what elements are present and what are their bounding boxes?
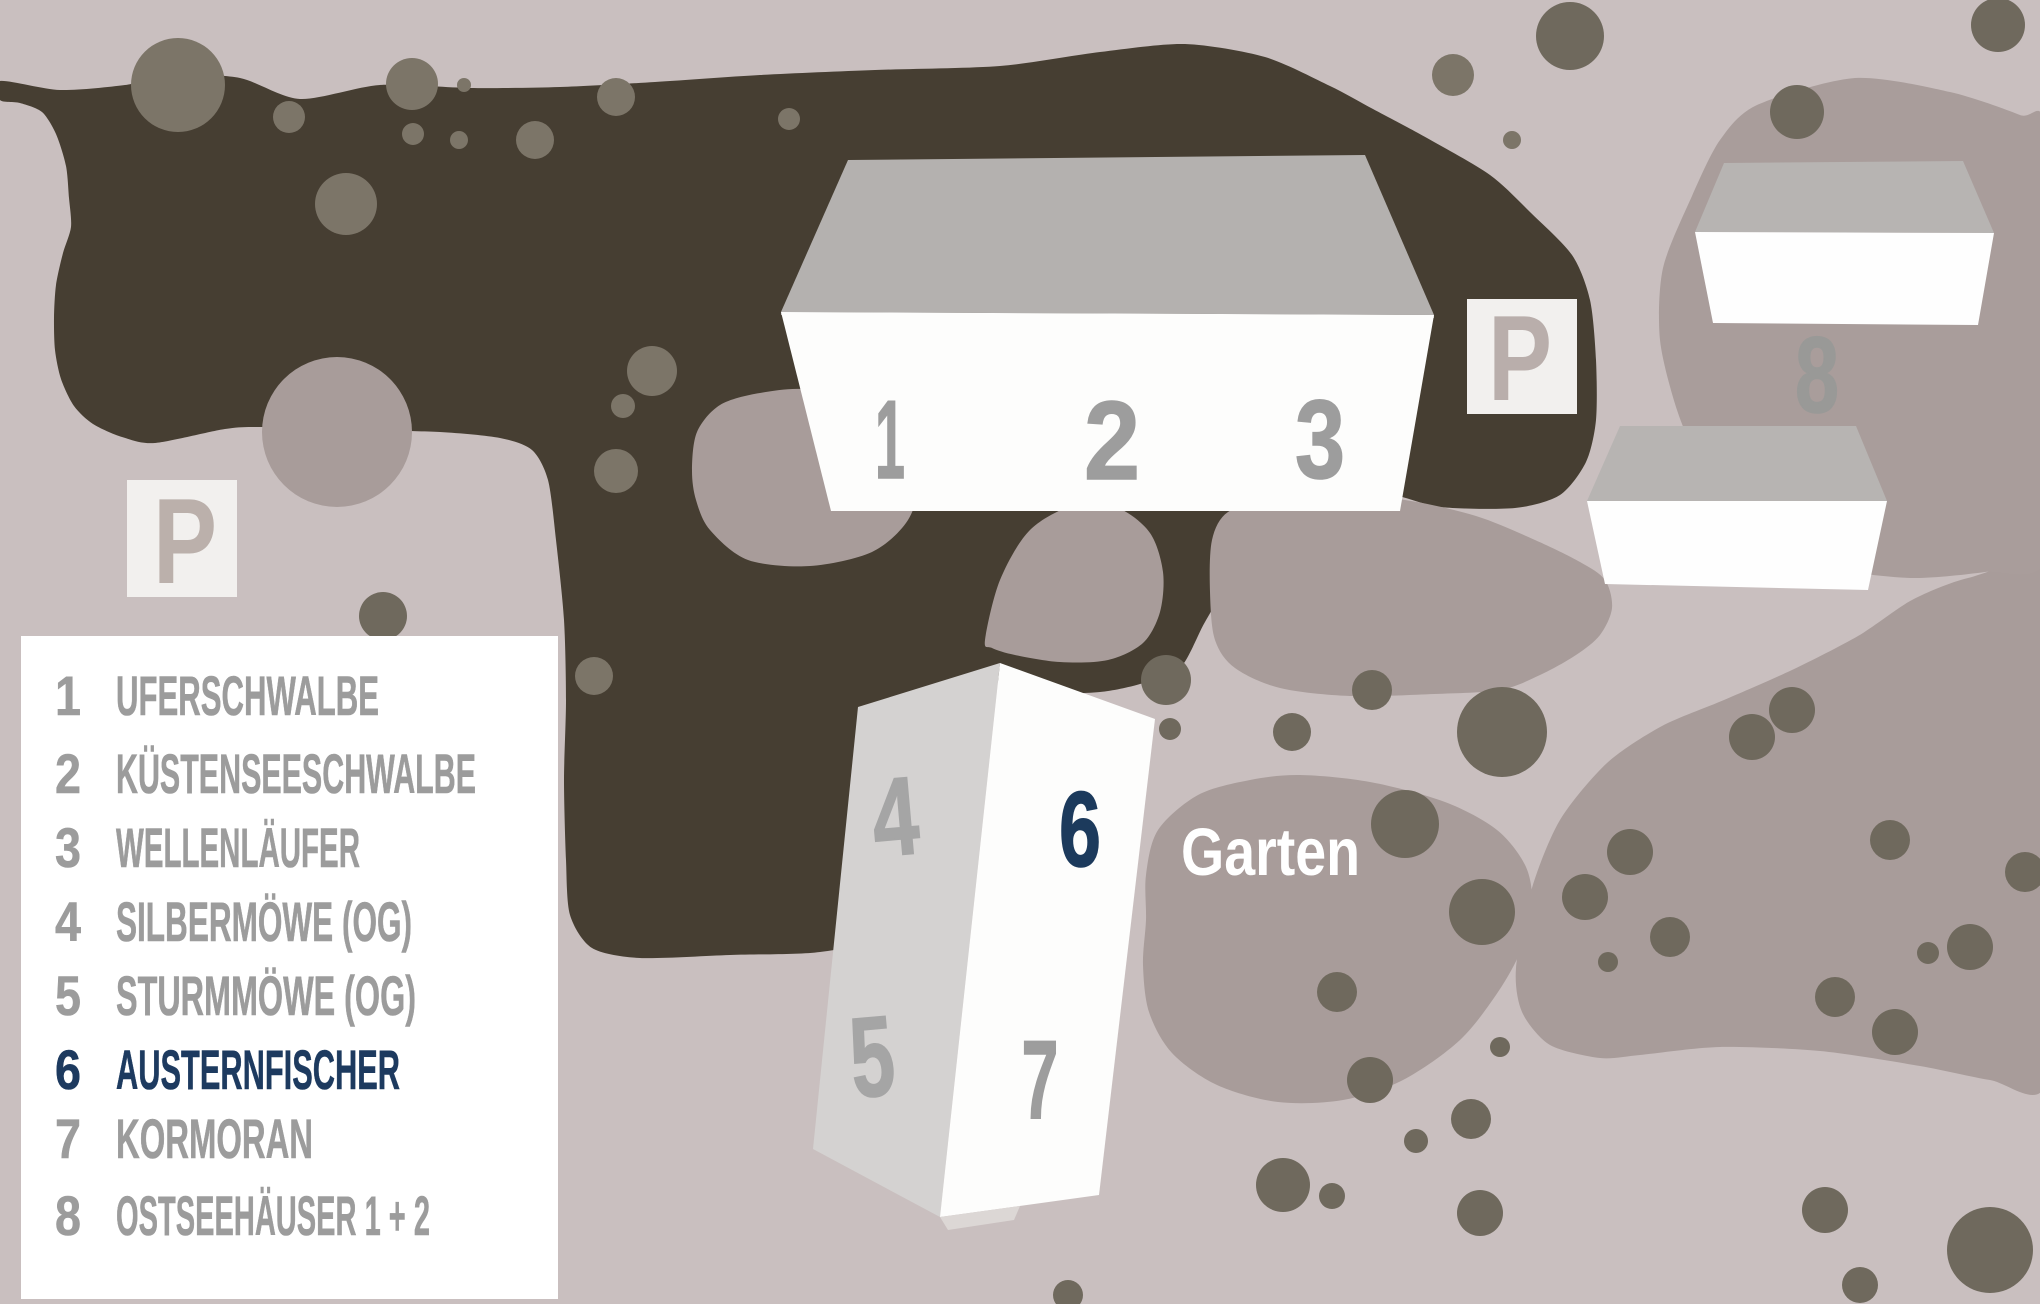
- svg-text:6: 6: [55, 1038, 81, 1101]
- svg-text:2: 2: [1084, 379, 1140, 503]
- svg-text:2: 2: [55, 742, 81, 805]
- svg-text:8: 8: [55, 1184, 81, 1247]
- svg-text:7: 7: [1022, 1018, 1059, 1142]
- svg-text:OSTSEEHÄUSER 1 + 2: OSTSEEHÄUSER 1 + 2: [116, 1184, 430, 1247]
- svg-text:UFERSCHWALBE: UFERSCHWALBE: [116, 664, 379, 727]
- svg-text:3: 3: [1295, 378, 1345, 502]
- svg-text:1: 1: [55, 664, 81, 727]
- svg-text:1: 1: [875, 378, 905, 502]
- svg-text:AUSTERNFISCHER: AUSTERNFISCHER: [116, 1038, 400, 1101]
- svg-text:3: 3: [55, 816, 81, 879]
- svg-text:SILBERMÖWE (OG): SILBERMÖWE (OG): [116, 890, 412, 953]
- svg-text:6: 6: [1059, 769, 1101, 889]
- svg-text:P: P: [1488, 290, 1552, 426]
- svg-text:7: 7: [55, 1107, 81, 1170]
- svg-text:STURMMÖWE (OG): STURMMÖWE (OG): [116, 964, 416, 1027]
- svg-text:8: 8: [1795, 314, 1839, 435]
- svg-text:KÜSTENSEESCHWALBE: KÜSTENSEESCHWALBE: [116, 742, 476, 805]
- svg-text:KORMORAN: KORMORAN: [116, 1107, 313, 1170]
- svg-text:P: P: [153, 473, 217, 609]
- svg-text:4: 4: [55, 890, 81, 953]
- svg-text:5: 5: [55, 964, 81, 1027]
- svg-text:WELLENLÄUFER: WELLENLÄUFER: [116, 816, 360, 879]
- svg-text:Garten: Garten: [1181, 815, 1360, 890]
